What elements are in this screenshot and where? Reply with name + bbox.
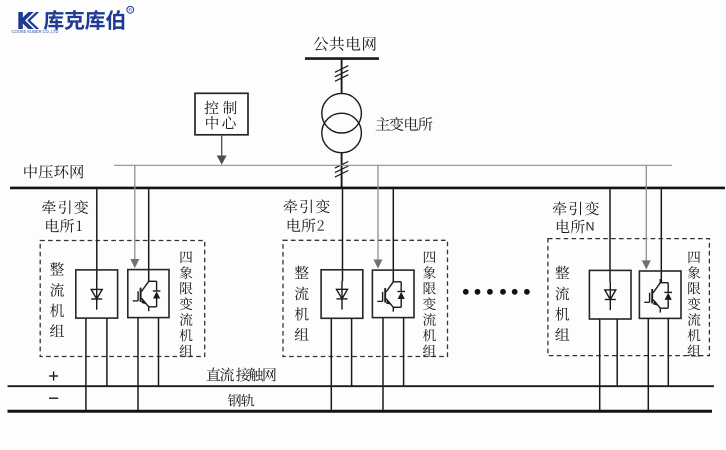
- svg-text:COOKE KUBER CO.,LTD: COOKE KUBER CO.,LTD: [12, 29, 59, 34]
- svg-text:N: N: [586, 219, 595, 233]
- svg-text:R: R: [129, 8, 133, 14]
